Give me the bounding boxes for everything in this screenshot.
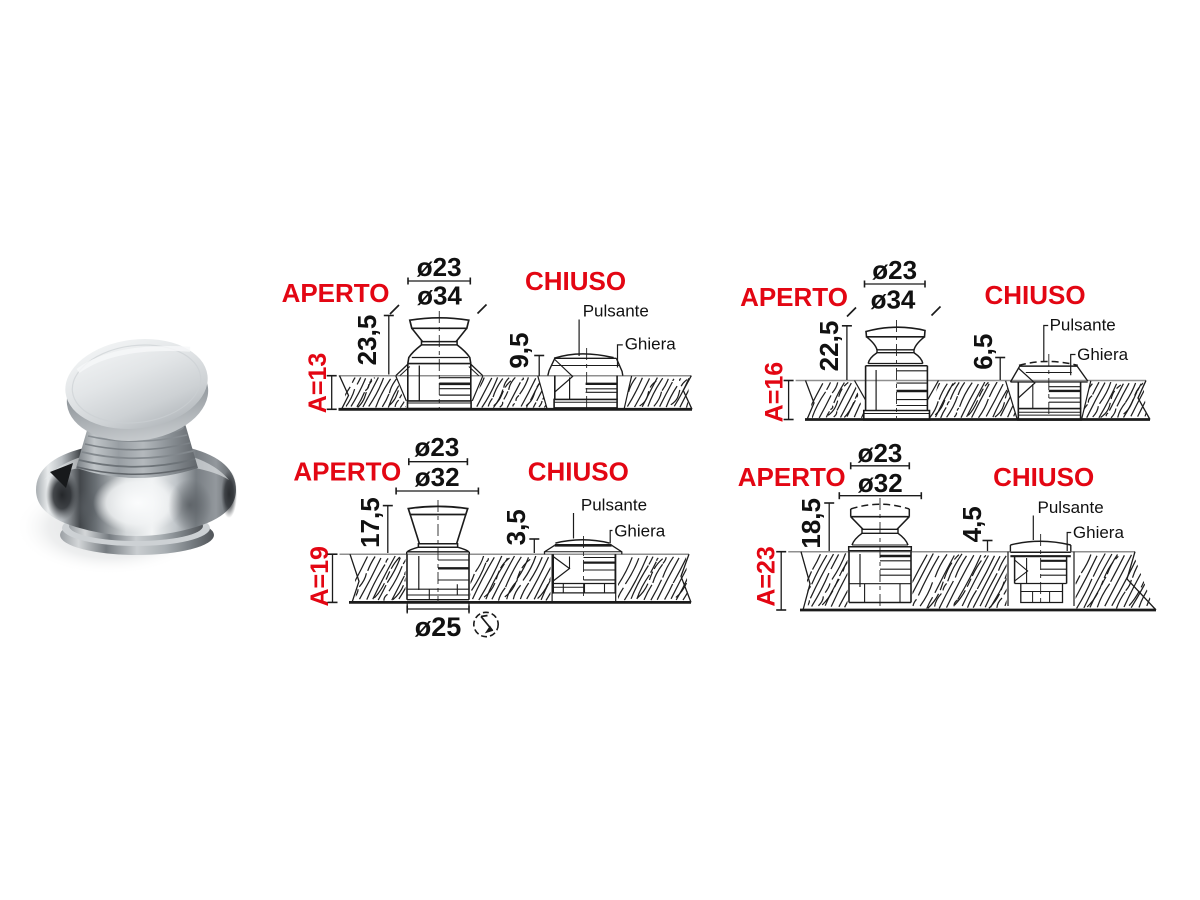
svg-text:Ghiera: Ghiera <box>614 522 666 541</box>
svg-text:A=19: A=19 <box>306 546 334 606</box>
svg-text:6,5: 6,5 <box>968 334 998 370</box>
svg-text:APERTO: APERTO <box>282 278 390 308</box>
svg-text:ø34: ø34 <box>871 285 916 315</box>
svg-text:APERTO: APERTO <box>740 282 848 312</box>
svg-text:CHIUSO: CHIUSO <box>993 462 1094 492</box>
svg-text:Pulsante: Pulsante <box>1038 498 1104 517</box>
svg-text:Pulsante: Pulsante <box>581 495 647 514</box>
svg-text:ø25: ø25 <box>415 612 462 642</box>
svg-text:Ghiera: Ghiera <box>625 335 677 354</box>
svg-text:CHIUSO: CHIUSO <box>528 457 629 487</box>
svg-text:A=23: A=23 <box>753 546 781 606</box>
svg-text:4,5: 4,5 <box>957 506 987 542</box>
svg-text:CHIUSO: CHIUSO <box>984 280 1085 310</box>
svg-text:23,5: 23,5 <box>352 315 382 366</box>
svg-text:17,5: 17,5 <box>355 497 385 548</box>
svg-text:3,5: 3,5 <box>501 509 531 545</box>
svg-text:APERTO: APERTO <box>293 457 401 487</box>
svg-text:ø23: ø23 <box>414 432 459 462</box>
svg-text:ø23: ø23 <box>417 252 462 282</box>
svg-text:APERTO: APERTO <box>738 462 846 492</box>
svg-text:22,5: 22,5 <box>814 321 844 372</box>
svg-text:18,5: 18,5 <box>796 498 826 549</box>
svg-text:9,5: 9,5 <box>504 333 534 369</box>
svg-text:ø34: ø34 <box>417 281 462 311</box>
svg-text:A=13: A=13 <box>304 353 332 413</box>
svg-text:Ghiera: Ghiera <box>1073 523 1125 542</box>
svg-text:Pulsante: Pulsante <box>583 302 649 321</box>
svg-text:ø32: ø32 <box>858 468 903 498</box>
svg-text:Pulsante: Pulsante <box>1050 316 1116 335</box>
svg-text:A=16: A=16 <box>761 362 789 422</box>
svg-text:ø23: ø23 <box>872 255 917 285</box>
svg-text:Ghiera: Ghiera <box>1077 345 1129 364</box>
svg-text:CHIUSO: CHIUSO <box>525 266 626 296</box>
svg-text:ø32: ø32 <box>415 462 460 492</box>
svg-text:ø23: ø23 <box>858 438 903 468</box>
